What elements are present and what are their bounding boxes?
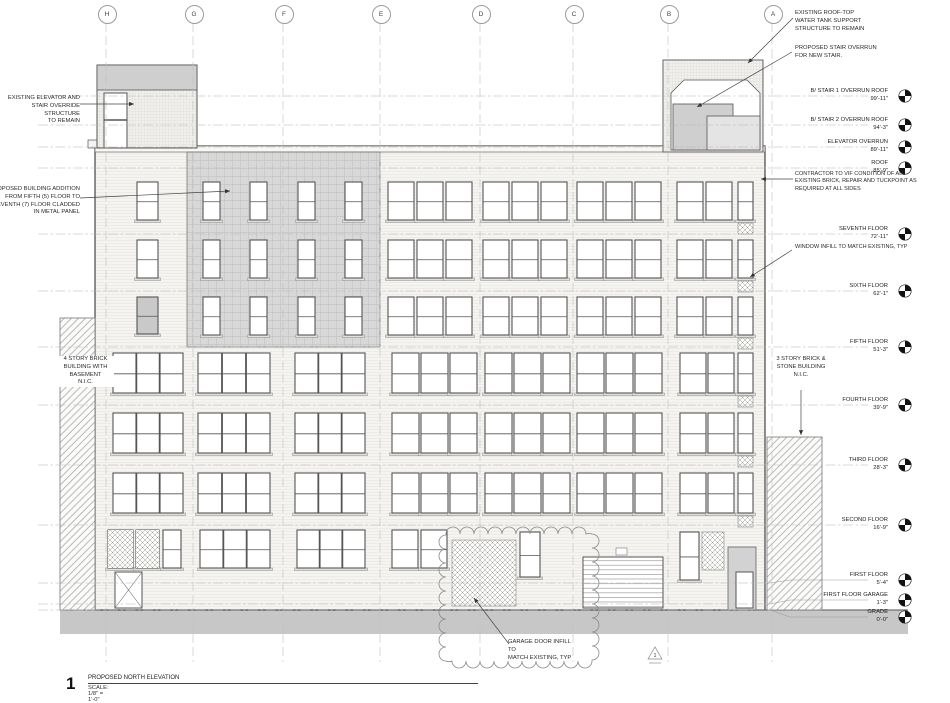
window	[678, 353, 709, 396]
window	[633, 473, 665, 516]
grid-bubble-g: G	[185, 5, 204, 24]
window	[201, 297, 223, 338]
annotation-water-tank: EXISTING ROOF-TOP WATER TANK SUPPORT STR…	[795, 10, 895, 33]
window	[510, 297, 541, 338]
annotation-stair-overrun: PROPOSED STAIR OVERRUN FOR NEW STAIR.	[795, 45, 905, 61]
window	[510, 240, 541, 281]
level-label: GRADE0'-0"	[758, 608, 888, 624]
window	[419, 353, 451, 396]
window	[296, 297, 318, 338]
infill-window	[106, 530, 136, 571]
window	[539, 297, 570, 338]
window	[390, 473, 422, 516]
window	[604, 473, 636, 516]
window	[541, 473, 573, 516]
window	[512, 473, 544, 516]
window	[633, 413, 665, 456]
infill-panel	[738, 396, 753, 407]
window	[675, 182, 706, 223]
window	[736, 473, 756, 516]
window	[706, 413, 737, 456]
grid-bubble-d: D	[472, 5, 491, 24]
window	[604, 297, 635, 338]
grid-bubble-e: E	[372, 5, 391, 24]
grid-bubble-a: A	[764, 5, 783, 24]
grid-bubble-c: C	[565, 5, 584, 24]
annotation-garage-infill: GARAGE DOOR INFILL TO MATCH EXISTING, TY…	[508, 639, 580, 662]
window	[483, 473, 515, 516]
window	[736, 353, 756, 396]
window	[604, 413, 636, 456]
infill-window	[134, 530, 162, 571]
window	[481, 297, 512, 338]
window	[415, 182, 446, 223]
view-number: 1	[66, 674, 75, 694]
window	[539, 182, 570, 223]
window	[604, 182, 635, 223]
window	[575, 240, 606, 281]
window	[736, 413, 756, 456]
vent	[616, 548, 627, 555]
level-label: FIRST FLOOR GARAGE1'-3"	[758, 591, 888, 607]
window	[633, 353, 665, 396]
window	[248, 297, 270, 338]
window	[135, 240, 161, 281]
window	[633, 297, 664, 338]
triple-window	[111, 353, 186, 396]
window	[706, 473, 737, 516]
window	[678, 413, 709, 456]
window	[575, 297, 606, 338]
grid-bubble-h: H	[98, 5, 117, 24]
window	[510, 182, 541, 223]
revision-marker: 1	[648, 647, 662, 663]
level-label: THIRD FLOOR28'-3"	[758, 456, 888, 472]
window	[678, 473, 709, 516]
window	[296, 240, 318, 281]
window	[448, 473, 480, 516]
triple-window	[293, 353, 368, 396]
window	[201, 240, 223, 281]
window	[678, 532, 702, 583]
window	[343, 182, 365, 223]
window	[386, 240, 417, 281]
window	[483, 413, 515, 456]
window	[444, 182, 475, 223]
triple-window	[295, 530, 368, 571]
window	[675, 240, 706, 281]
triple-window	[111, 473, 186, 516]
window	[512, 413, 544, 456]
window	[518, 532, 543, 580]
level-label: FOURTH FLOOR39'-9"	[758, 396, 888, 412]
window	[736, 240, 756, 281]
window	[419, 530, 450, 571]
window	[575, 353, 607, 396]
window	[390, 530, 421, 571]
window	[539, 240, 570, 281]
window	[415, 240, 446, 281]
stair-overrun-box-2	[707, 116, 760, 150]
window	[512, 353, 544, 396]
window	[419, 473, 451, 516]
annotation-proposed-addition: PROPOSED BUILDING ADDITION FROM FIFTH (5…	[0, 186, 80, 217]
level-label: FIRST FLOOR5'-4"	[758, 571, 888, 587]
view-scale: SCALE: 1/8" = 1'-0"	[88, 685, 109, 703]
window	[343, 240, 365, 281]
window	[575, 182, 606, 223]
triple-window	[196, 413, 273, 456]
grid-bubble-b: B	[660, 5, 679, 24]
triple-window	[293, 413, 368, 456]
window	[604, 353, 636, 396]
window	[481, 182, 512, 223]
level-label: ELEVATOR OVERRUN89'-11"	[758, 138, 888, 154]
window	[575, 473, 607, 516]
annotation-window-infill: WINDOW INFILL TO MATCH EXISTING, TYP	[795, 244, 925, 251]
window	[201, 182, 223, 223]
window	[448, 353, 480, 396]
window	[248, 240, 270, 281]
window	[419, 413, 451, 456]
infill-panel	[702, 532, 724, 570]
window	[415, 297, 446, 338]
annotation-existing-elevator: EXISTING ELEVATOR AND STAIR OVERRIDE STR…	[0, 95, 80, 126]
window	[736, 182, 756, 223]
view-title: PROPOSED NORTH ELEVATION	[88, 675, 478, 684]
triple-window	[293, 473, 368, 516]
window	[541, 413, 573, 456]
grid-bubble-f: F	[275, 5, 294, 24]
window	[448, 413, 480, 456]
revision-number: 1	[654, 653, 657, 659]
entry-door-right	[736, 572, 753, 608]
window	[704, 240, 735, 281]
window	[541, 353, 573, 396]
garage-door	[583, 557, 663, 608]
triple-window	[196, 473, 273, 516]
triple-window	[111, 413, 186, 456]
window	[386, 297, 417, 338]
window	[386, 182, 417, 223]
window	[444, 240, 475, 281]
level-label: B/ STAIR 1 OVERRUN ROOF99'-11"	[758, 87, 888, 103]
level-label: SECOND FLOOR16'-9"	[758, 516, 888, 532]
level-label: SIXTH FLOOR62'-1"	[758, 282, 888, 298]
louver-panel	[135, 297, 161, 337]
infill-panel	[738, 281, 753, 292]
window	[704, 182, 735, 223]
window	[390, 353, 422, 396]
level-label: B/ STAIR 2 OVERRUN ROOF94'-3"	[758, 116, 888, 132]
window	[483, 353, 515, 396]
window	[675, 297, 706, 338]
level-label: SEVENTH FLOOR72'-11"	[758, 225, 888, 241]
window	[633, 182, 664, 223]
infill-panel	[738, 516, 753, 527]
window	[135, 182, 161, 223]
triple-window	[198, 530, 273, 571]
window	[604, 240, 635, 281]
infill-panel	[738, 338, 753, 349]
elevation-sheet: 1 H G F E D C B A B/ STAIR 1 OVERRUN ROO…	[0, 0, 950, 701]
window	[633, 240, 664, 281]
window	[736, 297, 756, 338]
annotation-contractor-vif: CONTRACTOR TO VIF CONDITION OF ALL EXIST…	[795, 171, 920, 193]
annotation-three-story-building: 3 STORY BRICK & STONE BUILDING N.I.C.	[770, 356, 832, 379]
garage-infill-panel	[452, 540, 516, 606]
window	[390, 413, 422, 456]
triple-window	[196, 353, 273, 396]
window	[296, 182, 318, 223]
window	[248, 182, 270, 223]
window	[481, 240, 512, 281]
window	[161, 530, 184, 571]
infill-panel	[738, 456, 753, 467]
window	[704, 297, 735, 338]
window	[343, 297, 365, 338]
window	[706, 353, 737, 396]
infill-panel	[738, 223, 753, 234]
level-label: FIFTH FLOOR51'-3"	[758, 338, 888, 354]
window	[575, 413, 607, 456]
window	[444, 297, 475, 338]
annotation-four-story-building: 4 STORY BRICK BUILDING WITH BASEMENT N.I…	[57, 356, 114, 387]
